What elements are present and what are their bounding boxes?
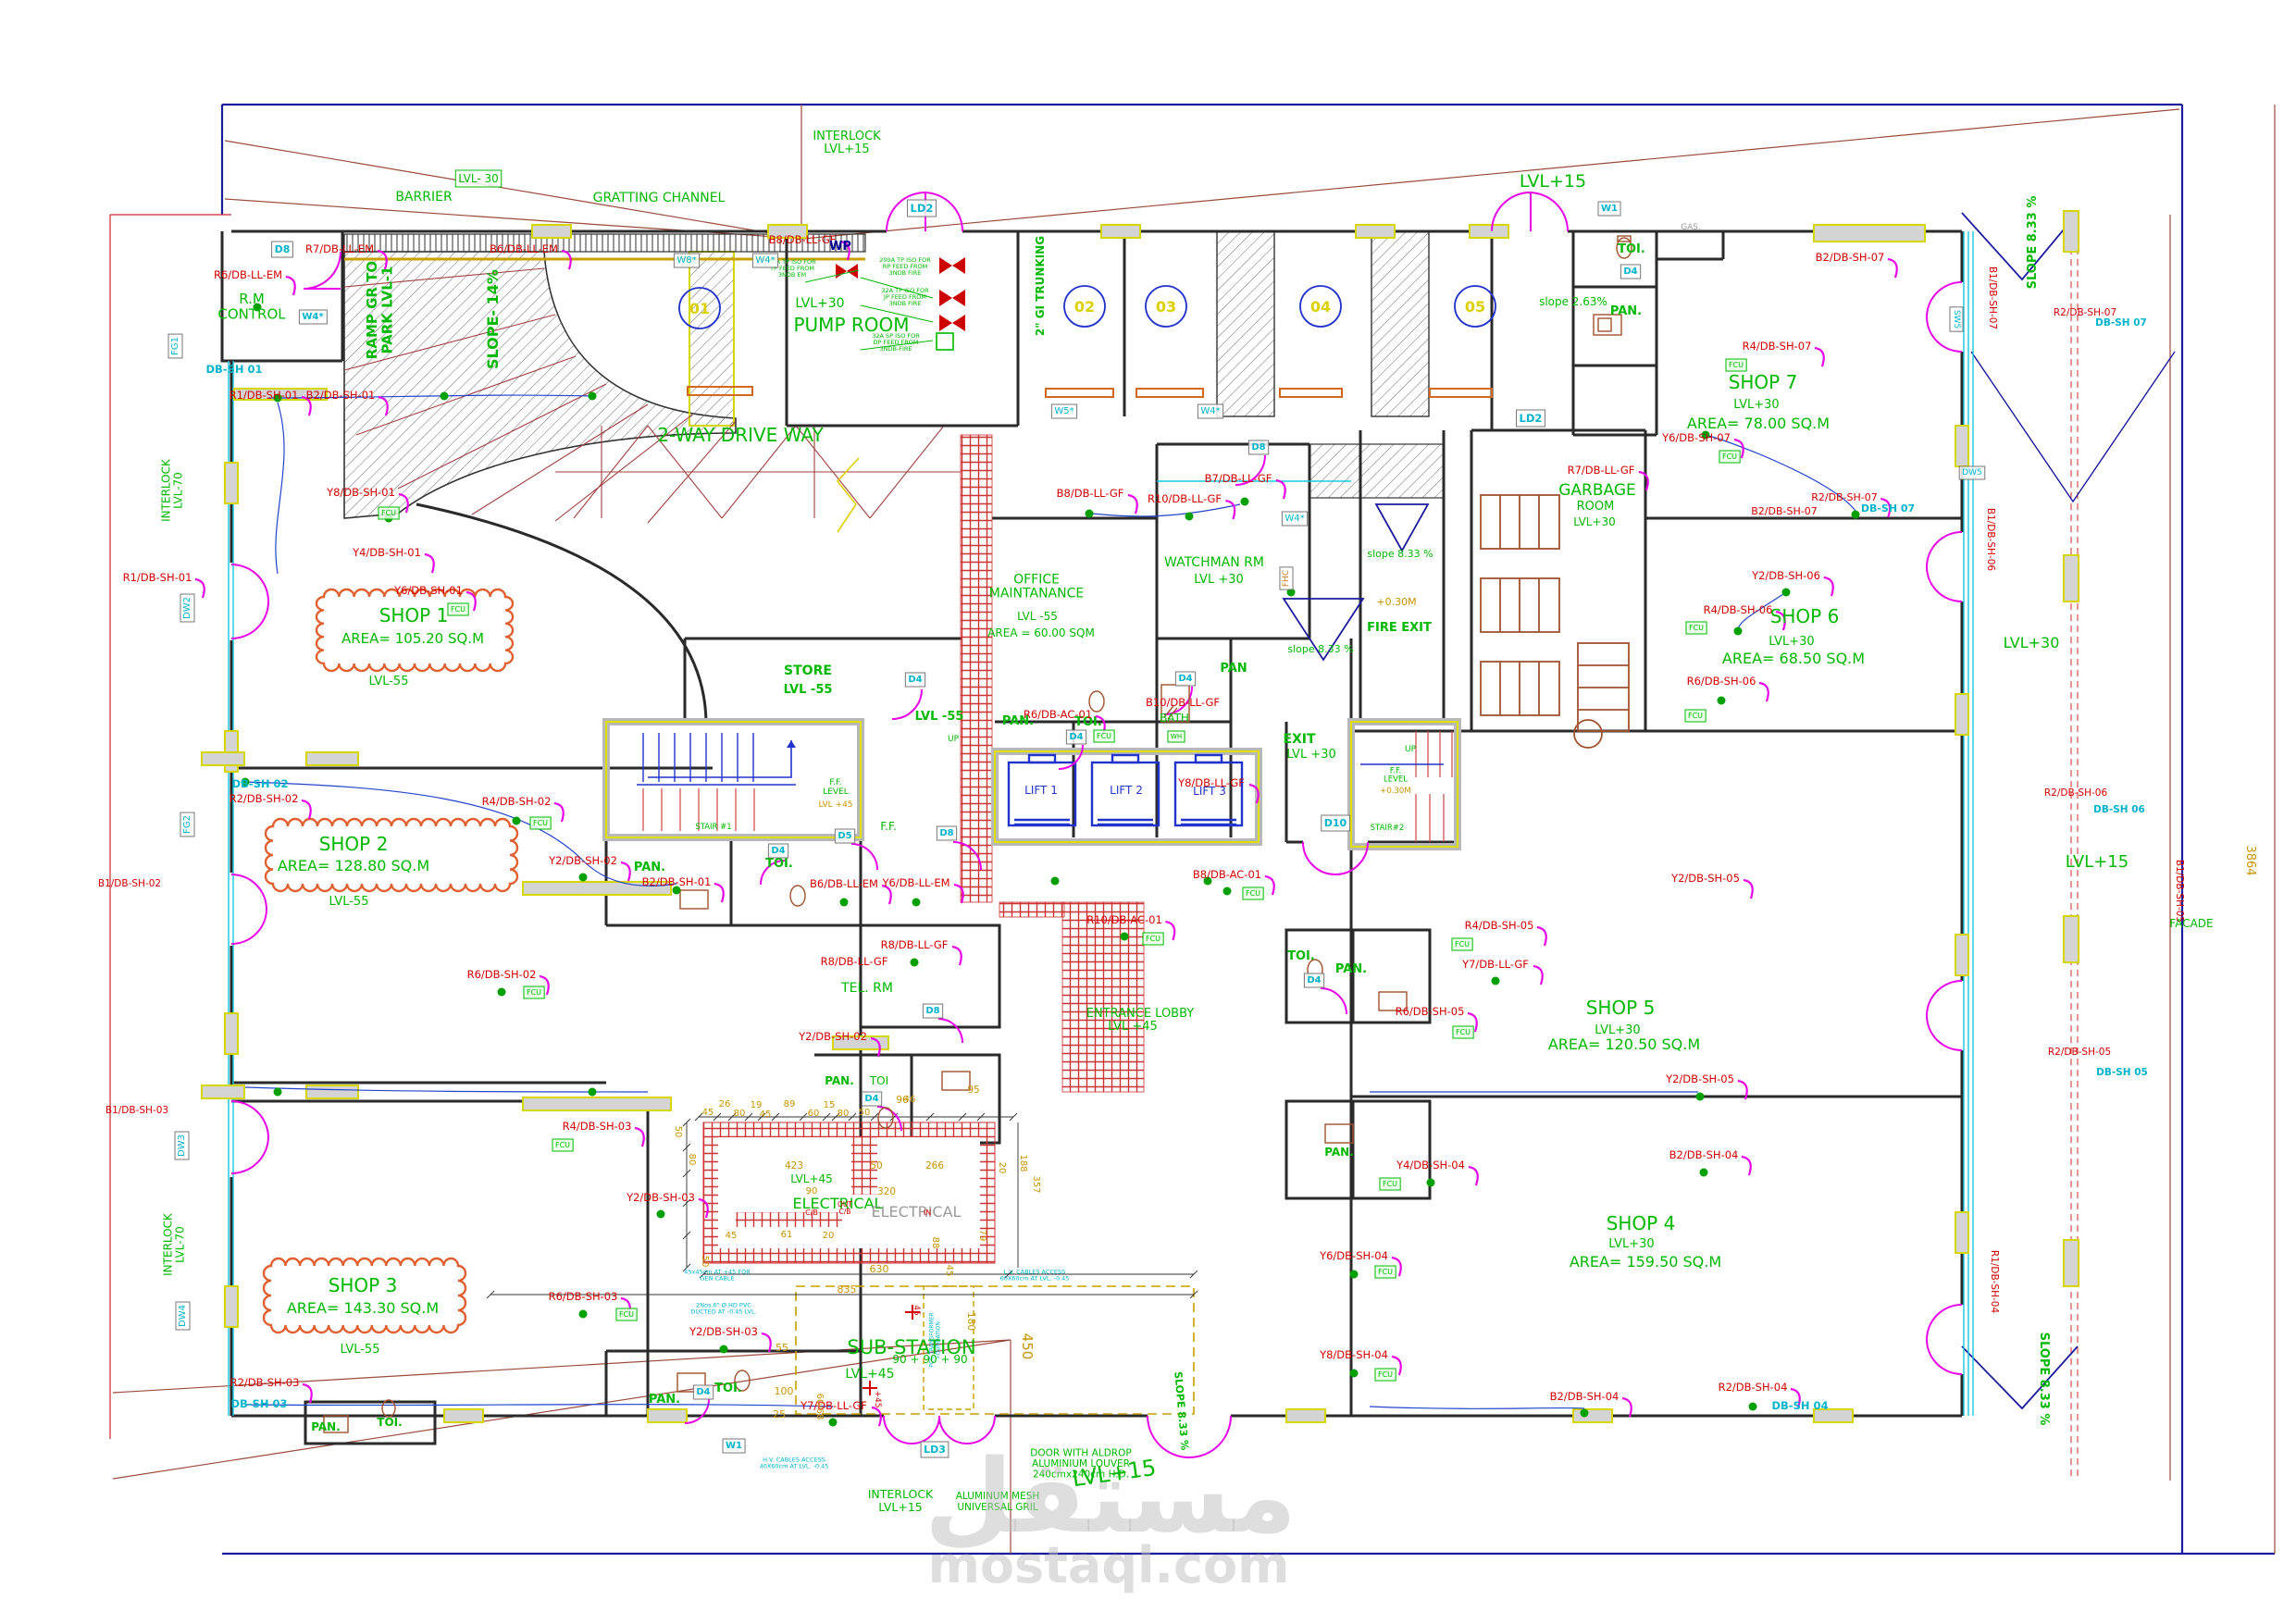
parking-stall-02: 02 bbox=[1064, 286, 1105, 327]
leader-arrow-icon bbox=[286, 277, 295, 295]
stall-number: 05 bbox=[1465, 298, 1485, 316]
label-slope-8-33-54: slope 8.33 % bbox=[1367, 548, 1433, 560]
leader-arrow-icon bbox=[1265, 876, 1274, 895]
label-80-250: 80 bbox=[838, 1109, 850, 1119]
label-toi-217: TOI. bbox=[714, 1382, 742, 1395]
label-32a-sp-iso-for-dp-feed-from-3ndb-fire-27: 32A SP ISO FORDP FEED FROM3NDB-FIRE bbox=[872, 332, 920, 353]
label-stair-2-106: STAIR#2 bbox=[1371, 824, 1405, 833]
light-icon bbox=[1350, 1271, 1359, 1279]
label-ramp-gr-to-park-lvl-1-10: RAMP GR TOPARK LVL-1 bbox=[364, 261, 396, 359]
label-357-260: 357 bbox=[1031, 1175, 1041, 1193]
label-20-266: 20 bbox=[823, 1231, 835, 1241]
light-icon bbox=[513, 817, 521, 825]
label-r6-db-sh-05-128: R6/DB-SH-05 bbox=[1396, 1005, 1465, 1018]
label-b2-db-sh-07-150: B2/DB-SH-07 bbox=[1751, 505, 1817, 517]
label-w4-33: W4* bbox=[1200, 406, 1220, 416]
label-d4-77: D4 bbox=[1069, 732, 1083, 742]
label-lvl-55-185: LVL-55 bbox=[329, 895, 369, 909]
label-r2-db-sh-04-148: R2/DB-SH-04 bbox=[1719, 1381, 1788, 1394]
leader-arrow-icon bbox=[1815, 348, 1824, 366]
label-b2-db-sh-04-135: B2/DB-SH-04 bbox=[1669, 1148, 1739, 1161]
label-fcu-210: FCU bbox=[619, 1310, 634, 1319]
light-icon bbox=[1718, 697, 1726, 705]
label-95-120: 95 bbox=[967, 1085, 979, 1096]
label-pan-140: PAN. bbox=[1324, 1146, 1354, 1159]
label-lvl-55-198: LVL-55 bbox=[369, 675, 409, 688]
label-w4-31: W4* bbox=[755, 255, 775, 266]
label-r2-db-sh-06-168: R2/DB-SH-06 bbox=[2044, 787, 2108, 799]
label-r1-db-sh-01-15: R1/DB-SH-01 bbox=[230, 389, 299, 402]
label-3864-176: 3864 bbox=[2243, 845, 2257, 875]
label-d5-88: D5 bbox=[838, 831, 851, 841]
leader-arrow-icon bbox=[1824, 577, 1833, 596]
label-630-269: 630 bbox=[870, 1263, 889, 1275]
leader-arrow-icon bbox=[714, 884, 724, 902]
label-180-224: 180 bbox=[965, 1312, 976, 1331]
label-lvl-45-85: LVL +45 bbox=[818, 800, 852, 810]
label-c-b-239: C/B bbox=[805, 1209, 818, 1217]
label-835-270: 835 bbox=[838, 1283, 857, 1295]
leader-arrow-icon bbox=[621, 862, 630, 881]
label-shop-1-196: SHOP 1 bbox=[379, 604, 449, 626]
leader-arrow-icon bbox=[1276, 480, 1285, 499]
label-fcu-48: FCU bbox=[1722, 452, 1737, 461]
label-out-c-b-240: OUTC/B bbox=[838, 1200, 852, 1216]
label-d4-125: D4 bbox=[1307, 975, 1321, 986]
label-y2-db-sh-02-188: Y2/DB-SH-02 bbox=[548, 854, 617, 867]
label-ld2-28: LD2 bbox=[911, 202, 934, 215]
label-b1-db-sh-06-167: B1/DB-SH-06 bbox=[1985, 508, 1996, 572]
label-fhc-58: FHC bbox=[1282, 570, 1291, 587]
label-shop-6-156: SHOP 6 bbox=[1770, 605, 1840, 627]
label-50-268: 50 bbox=[700, 1256, 710, 1268]
label-y8-db-sh-01-191: Y8/DB-SH-01 bbox=[326, 486, 395, 499]
light-icon bbox=[829, 1419, 838, 1427]
label-lift-1-90: LIFT 1 bbox=[1024, 784, 1058, 797]
label-lvl-45-222: LVL+45 bbox=[845, 1367, 894, 1382]
light-icon bbox=[1223, 887, 1232, 896]
stair-1 bbox=[606, 722, 861, 837]
label-entrance-lobby-121: ENTRANCE LOBBY bbox=[1086, 1007, 1195, 1021]
label-lvl-45-238: LVL+45 bbox=[790, 1172, 833, 1185]
leader-arrow-icon bbox=[1225, 501, 1235, 519]
label-l-v-cables-access-60x60cm-at-lvl-0-45-227: L.V. CABLES ACCESS60X60cm AT LVL. -0.45 bbox=[1000, 1268, 1070, 1282]
label-90-261: 90 bbox=[806, 1186, 818, 1196]
label-fcu-154: FCU bbox=[1689, 624, 1704, 632]
label-r4-db-sh-05-126: R4/DB-SH-05 bbox=[1465, 919, 1534, 932]
label-80-254: 80 bbox=[687, 1154, 697, 1166]
light-icon bbox=[1581, 1409, 1589, 1418]
light-icon bbox=[840, 899, 849, 907]
label-lvl-55-82: LVL -55 bbox=[915, 710, 964, 724]
watermark-latin: mostaql.com bbox=[928, 1536, 1290, 1594]
light-icon bbox=[1185, 513, 1194, 521]
ramp-crescent-hatch bbox=[344, 252, 736, 518]
label-y4-db-sh-01-193: Y4/DB-SH-01 bbox=[352, 546, 421, 559]
label-r2-db-sh-05-174: R2/DB-SH-05 bbox=[2048, 1047, 2111, 1058]
label-shop-3-203: SHOP 3 bbox=[329, 1274, 398, 1296]
label-b6-db-ll-em-9: B6/DB-LL-EM bbox=[490, 242, 558, 255]
label-45-278: 45 bbox=[912, 1305, 921, 1315]
label-r7-db-ll-gf-50: R7/DB-LL-GF bbox=[1568, 464, 1635, 477]
leader-arrow-icon bbox=[1469, 1167, 1478, 1185]
label-b1-db-sh-03-199: B1/DB-SH-03 bbox=[105, 1105, 168, 1116]
label-2-gi-trunking-29: 2" GI TRUNKING bbox=[1034, 236, 1047, 336]
light-icon bbox=[1241, 498, 1249, 506]
label-y6-db-sh-04-143: Y6/DB-SH-04 bbox=[1319, 1249, 1388, 1262]
label-w4-12: W4* bbox=[302, 312, 324, 322]
label-y7-db-ll-gf-136: Y7/DB-LL-GF bbox=[1461, 958, 1529, 971]
label-store-79: STORE bbox=[784, 663, 832, 678]
label-office-maintanance-66: OFFICEMAINTANANCE bbox=[989, 572, 1084, 601]
label-w8-30: W8* bbox=[676, 255, 696, 266]
leader-arrow-icon bbox=[952, 947, 962, 965]
label-r6-db-sh-02-189: R6/DB-SH-02 bbox=[467, 968, 537, 981]
label-fcu-207: FCU bbox=[555, 1141, 570, 1149]
label-320-262: 320 bbox=[877, 1186, 896, 1197]
light-icon bbox=[274, 1088, 282, 1097]
label-80-244: 80 bbox=[734, 1109, 746, 1119]
label-60-248: 60 bbox=[808, 1109, 820, 1119]
label-50-251: 50 bbox=[859, 1108, 871, 1118]
stall-number: 02 bbox=[1074, 298, 1095, 316]
label-wh-73: WH bbox=[1171, 733, 1182, 740]
label-toi-215: TOI. bbox=[377, 1416, 402, 1429]
label-200a-tp-iso-for-rp-feed-from-3ndb-fire-25: 200A TP ISO FORRP FEED FROM3NDB FIRE bbox=[879, 256, 931, 277]
label-b8-db-ac-01-107: B8/DB-AC-01 bbox=[1193, 868, 1261, 881]
leader-arrow-icon bbox=[1888, 259, 1897, 278]
leader-arrow-icon bbox=[762, 1333, 771, 1352]
label-r2-db-sh-03-212: R2/DB-SH-03 bbox=[230, 1376, 300, 1389]
label-interlock-lvl-70-201: INTERLOCKLVL-70 bbox=[161, 1212, 186, 1276]
label-fcu-108: FCU bbox=[1246, 889, 1260, 898]
label-shop-4-137: SHOP 4 bbox=[1607, 1212, 1676, 1234]
label-lift-2-91: LIFT 2 bbox=[1110, 784, 1143, 797]
label-50-256: 50 bbox=[870, 1160, 882, 1172]
label-shop-2-183: SHOP 2 bbox=[319, 833, 389, 855]
label-electrical-237: ELECTRICAL bbox=[872, 1203, 962, 1221]
light-icon bbox=[579, 1310, 588, 1319]
label-y2-db-sh-02-115: Y2/DB-SH-02 bbox=[798, 1030, 867, 1043]
label-188-259: 188 bbox=[1018, 1154, 1028, 1172]
label-45-246: 45 bbox=[760, 1110, 772, 1120]
label-fg1-13: FG1 bbox=[170, 337, 180, 355]
label-pan-95: PAN. bbox=[634, 861, 665, 874]
light-icon bbox=[1700, 1169, 1708, 1177]
leader-arrow-icon bbox=[1622, 1398, 1632, 1417]
label-y8-db-ll-gf-93: Y8/DB-LL-GF bbox=[1177, 776, 1245, 789]
label-lvl-30-1: LVL- 30 bbox=[458, 172, 498, 185]
light-icon bbox=[579, 874, 588, 882]
label-db-sh-01-14: DB-SH 01 bbox=[206, 363, 263, 376]
label-ld2-49: LD2 bbox=[1520, 412, 1543, 425]
label-interlock-lvl-70-17: INTERLOCKLVL-70 bbox=[159, 458, 184, 522]
label-toi-123: TOI. bbox=[1287, 949, 1315, 963]
label-pan-214: PAN. bbox=[311, 1420, 341, 1433]
parking-stall-04: 04 bbox=[1300, 286, 1341, 327]
label-slope-8-33-57: slope 8.33 % bbox=[1287, 643, 1353, 655]
label-lvl-30-63: LVL +30 bbox=[1194, 573, 1244, 587]
label-up-83: UP bbox=[948, 735, 960, 744]
label-lvl-55-80: LVL -55 bbox=[784, 683, 833, 697]
label-pan-39: PAN. bbox=[1610, 304, 1642, 318]
label-dw5-166: DW5 bbox=[1962, 468, 1982, 477]
light-icon bbox=[1734, 627, 1743, 636]
label-b2-db-sh-07-41: B2/DB-SH-07 bbox=[1816, 251, 1885, 264]
label-exit-100: EXIT bbox=[1283, 732, 1316, 747]
light-icon bbox=[1051, 877, 1060, 886]
label-r-m-control-6: R.MCONTROL bbox=[217, 291, 286, 323]
label-b2-db-sh-04-147: B2/DB-SH-04 bbox=[1550, 1390, 1620, 1403]
stall-number: 03 bbox=[1156, 298, 1176, 316]
label-d4-97: D4 bbox=[771, 846, 785, 856]
label-w1-36: W1 bbox=[1601, 204, 1618, 214]
label-lvl-30-45: LVL+30 bbox=[1733, 398, 1779, 412]
light-icon bbox=[1852, 511, 1860, 519]
label-0-30m-55: +0.30M bbox=[1376, 596, 1416, 608]
label-b2-db-sh-01-16: B2/DB-SH-01 bbox=[306, 389, 376, 402]
label-slope-8-33-178: SLOPE 8.33 % bbox=[2037, 1333, 2051, 1426]
label-r7-db-ll-em-8: R7/DB-LL-EM bbox=[305, 242, 374, 255]
label-y2-db-sh-06-155: Y2/DB-SH-06 bbox=[1751, 569, 1820, 582]
parking-stall-05: 05 bbox=[1455, 286, 1496, 327]
label-y6-db-sh-01-194: Y6/DB-SH-01 bbox=[393, 584, 463, 597]
light-icon bbox=[589, 392, 597, 401]
label-toi-37: TOI. bbox=[1618, 242, 1645, 256]
label-r10-db-ac-01-109: R10/DB-AC-01 bbox=[1086, 913, 1162, 926]
label-dw2-19: DW2 bbox=[182, 597, 192, 619]
light-icon bbox=[1121, 933, 1129, 941]
stall-number: 01 bbox=[689, 300, 710, 317]
label-fcu-192: FCU bbox=[381, 509, 396, 517]
label-lvl-30-170: LVL+30 bbox=[2004, 634, 2060, 651]
light-icon bbox=[441, 392, 449, 401]
label-y2-db-sh-03-208: Y2/DB-SH-03 bbox=[626, 1191, 695, 1204]
label-pan-124: PAN. bbox=[1335, 962, 1367, 976]
label-b2-db-sh-01-94: B2/DB-SH-01 bbox=[642, 875, 712, 888]
light-icon bbox=[1782, 589, 1791, 597]
label-r1-db-sh-01-18: R1/DB-SH-01 bbox=[123, 571, 192, 584]
label-45-242: 45 bbox=[702, 1108, 714, 1118]
label-fcu-144: FCU bbox=[1378, 1268, 1393, 1276]
label-fcu-146: FCU bbox=[1378, 1370, 1393, 1379]
label-2nos-6-hd-pvc-ducted-at-0-45-lvl-229: 2Nos.6" Ø HD PVCDUCTED AT -0.45 LVL. bbox=[690, 1301, 756, 1315]
label-watchman-rm-62: WATCHMAN RM bbox=[1164, 555, 1264, 570]
label-r4-db-sh-07-42: R4/DB-SH-07 bbox=[1743, 340, 1812, 353]
label-d4-38: D4 bbox=[1623, 267, 1637, 277]
label-area-120-50-sq-m-132: AREA= 120.50 SQ.M bbox=[1548, 1035, 1700, 1053]
floor-plan-drawing: 0102030405BARRIERLVL- 30GRATTING CHANNEL… bbox=[0, 0, 2296, 1624]
label-25-273: 25 bbox=[773, 1408, 786, 1420]
label-90-90-90-275: 90 + 90 + 90 bbox=[892, 1353, 967, 1366]
label-fcu-43: FCU bbox=[1729, 361, 1744, 369]
label-lvl-15-4: LVL+15 bbox=[1520, 171, 1586, 192]
label-fcu-129: FCU bbox=[1456, 1028, 1471, 1036]
label-db-sh-07-152: DB-SH 07 bbox=[1861, 502, 1915, 514]
label-db-sh-02-180: DB-SH 02 bbox=[232, 777, 289, 790]
label-garbage-51: GARBAGE bbox=[1558, 481, 1636, 500]
label-d8-89: D8 bbox=[939, 828, 953, 838]
label-d8-7: D8 bbox=[275, 243, 291, 255]
light-icon bbox=[498, 988, 506, 997]
label-shop-7-44: SHOP 7 bbox=[1729, 371, 1798, 393]
leader-arrow-icon bbox=[1744, 880, 1753, 899]
light-icon bbox=[911, 959, 919, 967]
label-area-143-30-sq-m-204: AREA= 143.30 SQ.M bbox=[287, 1299, 439, 1317]
leader-arrow-icon bbox=[1742, 1157, 1751, 1175]
light-icon bbox=[589, 1088, 597, 1097]
label-lvl-30-53: LVL+30 bbox=[1573, 515, 1616, 528]
label-fcu-160: FCU bbox=[1688, 712, 1703, 720]
leader-arrow-icon bbox=[303, 1384, 312, 1403]
label-45-277: +45 bbox=[873, 1391, 882, 1408]
label-61-264: 61 bbox=[781, 1230, 793, 1240]
label-b8-db-ll-gf-20: B8/DB-LL-GF bbox=[769, 233, 837, 246]
label-bath-72: BATH bbox=[1160, 712, 1189, 725]
label-r4-db-sh-02-186: R4/DB-SH-02 bbox=[482, 795, 552, 808]
label-db-sh-03-213: DB-SH 03 bbox=[231, 1397, 288, 1410]
label-gratting-channel-2: GRATTING CHANNEL bbox=[593, 191, 726, 205]
shop-2-cloud bbox=[266, 819, 517, 891]
driveway-marking bbox=[838, 458, 859, 532]
leader-arrow-icon bbox=[635, 1128, 644, 1147]
label-2-way-drive-way-34: 2-WAY DRIVE WAY bbox=[657, 424, 824, 446]
label-45x45cm-at-45-for-gen-cable-228: 45x45cm AT +45 FORGEN CABLE bbox=[684, 1268, 751, 1282]
label-lvl-30-22: LVL+30 bbox=[795, 296, 844, 311]
leader-arrow-icon bbox=[1165, 922, 1174, 940]
label-450-225: 450 bbox=[1019, 1333, 1036, 1360]
label-dw3-200: DW3 bbox=[177, 1134, 187, 1157]
label-lvl-45-122: LVL +45 bbox=[1108, 1020, 1158, 1034]
label-26-243: 26 bbox=[719, 1099, 731, 1110]
label-20-258: 20 bbox=[997, 1162, 1007, 1174]
label-area-68-50-sq-m-158: AREA= 68.50 SQ.M bbox=[1722, 650, 1865, 667]
leader-arrow-icon bbox=[302, 800, 311, 819]
label-lvl-15-171: LVL+15 bbox=[2066, 852, 2128, 872]
label-lvl-30-157: LVL+30 bbox=[1769, 635, 1814, 649]
parking-stall-03: 03 bbox=[1146, 286, 1186, 327]
label-shop-5-130: SHOP 5 bbox=[1586, 997, 1656, 1019]
label-toi-117: TOI bbox=[869, 1074, 888, 1087]
light-icon bbox=[720, 1345, 728, 1354]
leader-arrow-icon bbox=[425, 554, 434, 573]
label-b8-db-ll-gf-64: B8/DB-LL-GF bbox=[1057, 487, 1124, 500]
label-b10-db-ll-gf-71: B10/DB-LL-GF bbox=[1146, 696, 1220, 709]
label-area-128-80-sq-m-184: AREA= 128.80 SQ.M bbox=[278, 857, 429, 874]
label-d8-61: D8 bbox=[1251, 442, 1265, 452]
label-50-253: 50 bbox=[673, 1126, 683, 1138]
light-icon bbox=[1427, 1179, 1435, 1187]
label-pan-69: PAN bbox=[1220, 662, 1247, 676]
label-fcu-110: FCU bbox=[1146, 935, 1160, 943]
label-sw5-163: SW5 bbox=[1952, 310, 1961, 329]
label-dw4-202: DW4 bbox=[178, 1305, 188, 1327]
label-45-265: 45 bbox=[726, 1231, 738, 1241]
leader-arrow-icon bbox=[1128, 495, 1137, 514]
label-y6-db-ll-em-99: Y6/DB-LL-EM bbox=[881, 876, 949, 889]
label-r1-db-sh-04-177: R1/DB-SH-04 bbox=[1989, 1250, 2000, 1314]
label-89-247: 89 bbox=[784, 1099, 796, 1110]
label-0-30m-105: +0.30M bbox=[1380, 787, 1410, 796]
label-r6-db-ac-01-76: R6/DB-AC-01 bbox=[1024, 708, 1092, 721]
light-icon bbox=[1350, 1370, 1359, 1378]
label-fcu-195: FCU bbox=[451, 605, 465, 614]
label-y4-db-sh-04-141: Y4/DB-SH-04 bbox=[1396, 1159, 1465, 1172]
label-r4-db-sh-03-206: R4/DB-SH-03 bbox=[563, 1120, 632, 1133]
label-d4-70: D4 bbox=[1178, 674, 1192, 684]
label-32a-tp-iso-for-jp-feed-from-3ndb-fire-26: 32A TP ISO FORJP FEED FROM3NDB FIRE bbox=[881, 287, 929, 307]
label-lvl-55-67: LVL -55 bbox=[1017, 610, 1058, 623]
leader-arrow-icon bbox=[554, 803, 564, 822]
label-y8-db-sh-04-145: Y8/DB-SH-04 bbox=[1319, 1348, 1388, 1361]
label-fire-exit-56: FIRE EXIT bbox=[1367, 621, 1432, 635]
label-d8-114: D8 bbox=[925, 1006, 939, 1016]
label-r4-db-sh-06-153: R4/DB-SH-06 bbox=[1704, 603, 1773, 616]
stall-number: 04 bbox=[1310, 298, 1331, 316]
label-up-103: UP bbox=[1405, 745, 1417, 754]
label-tel-rm-113: TEL. RM bbox=[840, 981, 893, 996]
garbage-bins bbox=[1481, 495, 1629, 748]
label-lvl-30-101: LVL +30 bbox=[1286, 748, 1336, 762]
label-100-272: 100 bbox=[775, 1385, 794, 1397]
label-y2-db-sh-05-133: Y2/DB-SH-05 bbox=[1670, 872, 1740, 885]
label-y2-db-sh-03-211: Y2/DB-SH-03 bbox=[689, 1325, 758, 1338]
label-room-52: ROOM bbox=[1577, 500, 1615, 514]
label-y7-db-ll-gf-220: Y7/DB-LL-GF bbox=[800, 1399, 867, 1412]
label-d10-102: D10 bbox=[1324, 817, 1347, 829]
label-db-sh-06-169: DB-SH 06 bbox=[2093, 804, 2145, 815]
label-b1-db-sh-05-172: B1/DB-SH-05 bbox=[2174, 860, 2185, 923]
label-slope-8-33-161: SLOPE 8.33 % bbox=[2026, 196, 2040, 290]
label-45-276: 45 bbox=[944, 1265, 954, 1277]
label-79-267: 79 bbox=[977, 1230, 987, 1242]
label-266-257: 266 bbox=[925, 1160, 944, 1172]
label-slope-14-11: SLOPE- 14% bbox=[484, 269, 502, 369]
label-b7-db-ll-gf-60: B7/DB-LL-GF bbox=[1205, 472, 1272, 485]
light-icon bbox=[657, 1210, 665, 1219]
label-fcu-187: FCU bbox=[533, 819, 548, 827]
label-h-v-cables-access-40x60cm-at-lvl-0-45-226: H.V. CABLES ACCESS40X60cm AT LVL. -0.45 bbox=[760, 1456, 829, 1469]
fire-exit-triangles bbox=[1284, 504, 1428, 660]
label-y6-db-sh-07-47: Y6/DB-SH-07 bbox=[1661, 431, 1731, 444]
label-55-271: 55 bbox=[776, 1342, 788, 1354]
label-db-sh-07-165: DB-SH 07 bbox=[2095, 317, 2147, 329]
label-f-f-87: F.F. bbox=[880, 820, 897, 833]
label-60-68-274: 60/68 bbox=[814, 1394, 825, 1420]
label-r8-db-ll-gf-112: R8/DB-LL-GF bbox=[821, 955, 888, 968]
label-15-249: 15 bbox=[824, 1100, 836, 1110]
label-w5-32: W5* bbox=[1054, 406, 1074, 416]
label-pan-116: PAN. bbox=[825, 1074, 854, 1087]
light-icon bbox=[912, 899, 921, 907]
label-w1-219: W1 bbox=[726, 1441, 742, 1451]
label-stair-1-86: STAIR #1 bbox=[695, 823, 731, 832]
label-r6-db-sh-03-209: R6/DB-SH-03 bbox=[549, 1290, 618, 1303]
label-d4-218: D4 bbox=[696, 1387, 710, 1397]
label-db-sh-05-175: DB-SH 05 bbox=[2096, 1067, 2148, 1078]
label-interlock-lvl-15-3: INTERLOCKLVL+15 bbox=[813, 130, 881, 156]
label-barrier-0: BARRIER bbox=[395, 190, 453, 205]
label-lvl-30-138: LVL+30 bbox=[1608, 1237, 1654, 1251]
label-d4-118: D4 bbox=[864, 1094, 878, 1104]
label-area-105-20-sq-m-197: AREA= 105.20 SQ.M bbox=[341, 630, 484, 647]
label-facade-173: FACADE bbox=[2169, 917, 2213, 930]
label-pan-216: PAN. bbox=[649, 1393, 680, 1407]
label-46-252: 46 bbox=[904, 1095, 916, 1105]
label-b1-db-sh-07-162: B1/DB-SH-07 bbox=[1987, 267, 1998, 329]
label-b6-db-ll-em-98: B6/DB-LL-EM bbox=[810, 877, 878, 890]
label-r6-db-sh-06-159: R6/DB-SH-06 bbox=[1687, 675, 1756, 688]
